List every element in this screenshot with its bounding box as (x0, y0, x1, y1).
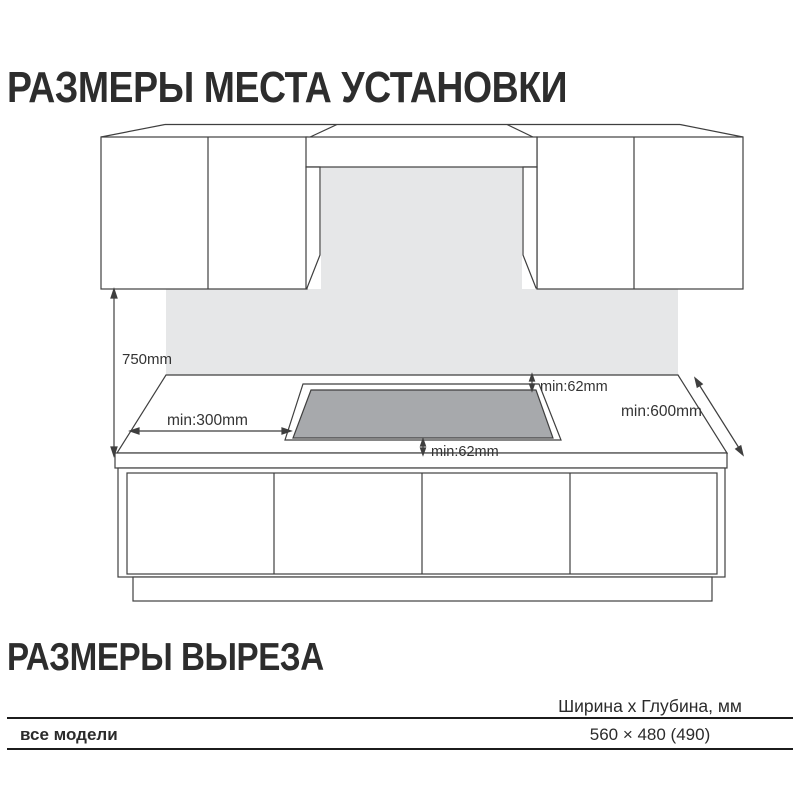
spec-row-model-label: все модели (7, 725, 507, 745)
plinth (133, 577, 712, 601)
spec-header-dimensions: Ширина x Глубина, мм (507, 696, 793, 717)
dim-label-counter-depth: min:600mm (621, 403, 702, 420)
upper-cabinet-right (537, 137, 743, 289)
dim-label-side-clearance: min:300mm (167, 412, 248, 429)
spec-table-row: все модели 560 × 480 (490) (7, 719, 793, 748)
dim-label-front-clearance: min:62mm (431, 444, 499, 460)
lower-cabinet (118, 468, 725, 577)
cutout-dimensions-title: РАЗМЕРЫ ВЫРЕЗА (7, 638, 324, 677)
spec-table-header-row: Ширина x Глубина, мм (7, 690, 793, 717)
dim-label-wall-height: 750mm (122, 351, 172, 368)
upper-cabinet-top-face (101, 125, 743, 139)
spec-row-dimensions-value: 560 × 480 (490) (507, 725, 793, 745)
manual-page: РАЗМЕРЫ МЕСТА УСТАНОВКИ (0, 0, 800, 800)
cooktop-cutout (285, 384, 561, 440)
dim-label-back-clearance: min:62mm (540, 379, 608, 395)
upper-cabinet-left (101, 137, 307, 289)
dim-arrow-wall-height (111, 289, 117, 456)
spec-table-bottom-rule (7, 748, 793, 750)
cutout-spec-table: Ширина x Глубина, мм все модели 560 × 48… (7, 690, 793, 750)
installation-diagram: 750mm min:300mm min:62mm min:62mm min:60… (0, 0, 800, 800)
